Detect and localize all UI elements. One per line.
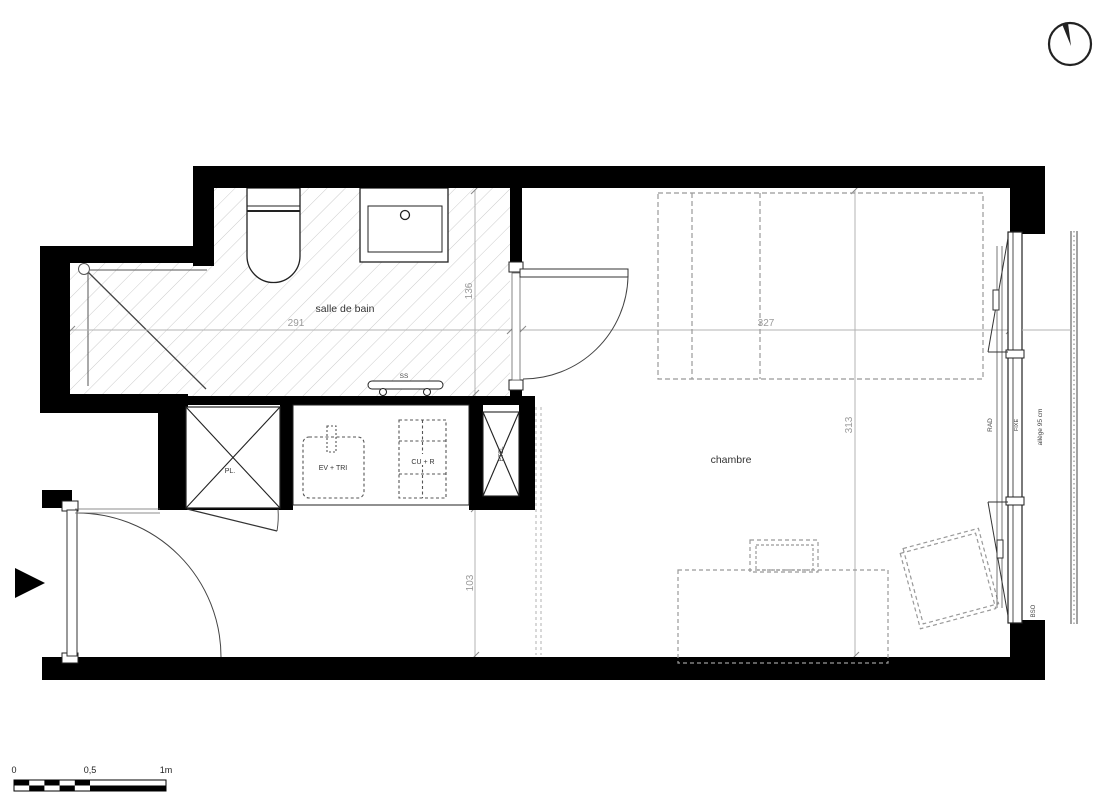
washbasin [360,188,448,262]
kitchenette [293,405,469,505]
door-swing-arc [77,513,221,657]
window-sash-top [988,238,1008,352]
door-leaf [67,510,77,656]
bedroom-label: chambre [711,454,752,466]
bed-outline [658,193,983,379]
dim-bedroom-width: 327 [758,318,775,329]
window-assembly [988,231,1077,624]
radiator-label: RAD [987,418,994,432]
bathroom-label: salle de bain [316,303,375,315]
side-table-outline [899,528,999,628]
desk-outline [678,540,888,663]
fixed-pane-label: FIXE [1014,419,1020,432]
exterior-blind-lines [1071,231,1077,624]
north-indicator-icon [1049,23,1091,65]
door-leaf [520,269,628,277]
shower-drain-icon [79,264,90,275]
duct-projection-dashed [536,407,541,655]
bathroom-door [509,262,628,390]
duct-label: ETEL [499,446,505,462]
sink-unit-label: EV + TRI [319,465,348,472]
scale-bar-cells [14,780,166,791]
entry-door [62,501,221,663]
closet-label: PL. [225,468,236,475]
blinds-label: BSO [1031,604,1037,617]
closet-door-leaf [187,509,277,531]
toilet [247,188,300,283]
scale-half: 0,5 [84,765,97,775]
floor-plan-page: salle de bain chambre 291 327 136 313 10… [0,0,1110,800]
dim-bedroom-depth: 313 [844,416,855,433]
towel-rail-label: SS [400,373,409,380]
scale-one-meter: 1m [160,765,173,775]
door-swing-arc [523,277,628,379]
sill-height-label: allège 95 cm [1037,409,1044,446]
entrance-arrow-icon [15,568,45,598]
scale-zero: 0 [11,765,16,775]
dim-bathroom-width: 291 [288,318,305,329]
dim-bathroom-depth: 136 [464,282,475,299]
floor-plan-drawing: salle de bain chambre 291 327 136 313 10… [0,0,1110,800]
dim-entry-width: 103 [465,574,476,591]
cooking-fridge-label: CU + R [411,459,434,466]
faucet-icon [401,211,410,220]
window-sash-bottom [988,502,1008,616]
scale-bar: 0 0,5 1m [11,765,172,791]
